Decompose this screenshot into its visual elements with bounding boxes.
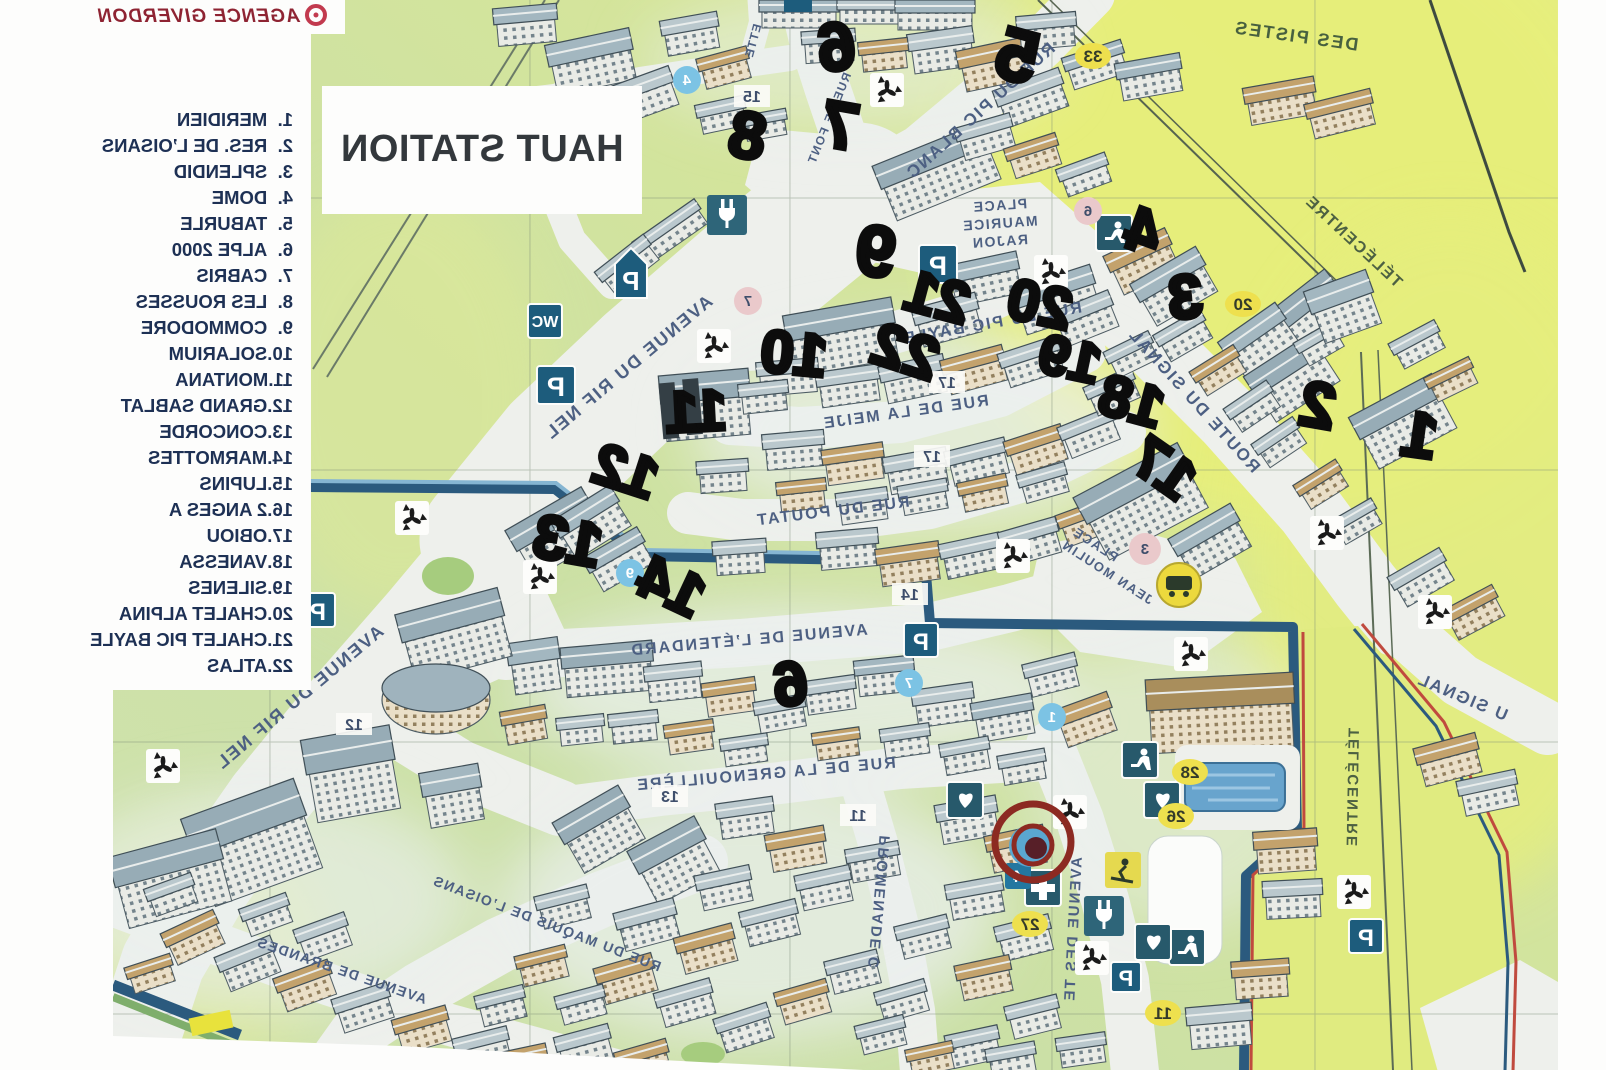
svg-text:27: 27 [1021,915,1040,934]
svg-text:17: 17 [938,375,956,392]
svg-text:2. RES. DE L’OISANS: 2. RES. DE L’OISANS [102,135,293,156]
svg-text:6: 6 [1084,203,1092,220]
svg-text:14.MARMOTTES: 14.MARMOTTES [148,447,293,468]
svg-text:11: 11 [849,808,866,825]
svg-text:9: 9 [852,210,899,293]
svg-text:11: 11 [664,377,729,445]
svg-text:8. LES ROUSSES: 8. LES ROUSSES [136,291,293,312]
svg-text:P: P [547,372,565,402]
svg-text:7: 7 [744,293,752,310]
svg-text:3: 3 [1141,541,1149,558]
svg-text:21.CHALET PIC BAYLE: 21.CHALET PIC BAYLE [90,629,293,650]
svg-text:20: 20 [1234,295,1253,314]
svg-text:P: P [913,629,929,656]
svg-text:1. MERIDIEN: 1. MERIDIEN [177,109,293,130]
svg-text:7. CABRIS: 7. CABRIS [196,265,293,286]
svg-text:19: 19 [1033,321,1107,396]
svg-text:WC: WC [531,314,558,331]
svg-text:P: P [310,599,326,626]
svg-text:HAUT STATION: HAUT STATION [340,128,623,170]
svg-text:20.CHALET ALPINA: 20.CHALET ALPINA [119,603,293,624]
svg-text:12: 12 [345,717,363,734]
svg-text:10: 10 [758,317,830,390]
svg-text:3. SPLENDID: 3. SPLENDID [174,161,293,182]
svg-text:P: P [622,266,639,296]
svg-text:11: 11 [1154,1004,1172,1023]
svg-text:11.MONTANA: 11.MONTANA [175,369,293,390]
svg-text:4: 4 [682,72,691,89]
svg-text:17.OBIOU: 17.OBIOU [207,525,293,546]
svg-text:18.VANESSA: 18.VANESSA [179,551,293,572]
svg-text:AGENCE GIVERDON: AGENCE GIVERDON [97,6,301,27]
svg-text:7: 7 [905,675,913,692]
svg-text:1: 1 [1048,709,1056,726]
svg-text:26: 26 [1167,807,1186,826]
svg-text:13: 13 [661,789,679,806]
svg-text:14: 14 [901,587,919,604]
svg-text:TÉLÉCENTRE: TÉLÉCENTRE [1344,728,1363,848]
svg-text:5. TABURLE: 5. TABURLE [180,213,293,234]
svg-text:4. DOME: 4. DOME [212,187,293,208]
svg-text:12.GRAND SABLAT: 12.GRAND SABLAT [120,395,293,416]
svg-text:15.LUPINS: 15.LUPINS [199,473,293,494]
svg-text:3: 3 [1165,262,1205,334]
svg-text:17: 17 [923,449,941,466]
svg-text:33: 33 [1084,47,1103,66]
svg-text:19.SILENES: 19.SILENES [188,577,293,598]
svg-text:9: 9 [626,565,634,582]
svg-text:10.SOLARIUM: 10.SOLARIUM [169,343,293,364]
svg-text:9. COMMODORE: 9. COMMODORE [141,317,293,338]
svg-text:13.CONCORDE: 13.CONCORDE [159,421,293,442]
svg-text:P: P [1358,925,1374,952]
svg-text:22.ATLAS: 22.ATLAS [207,655,293,676]
svg-text:P: P [1119,966,1134,991]
svg-text:13: 13 [528,502,608,582]
svg-text:16.2 ANGES A: 16.2 ANGES A [169,499,293,520]
svg-text:28: 28 [1181,763,1200,782]
svg-text:6. ALPE 2000: 6. ALPE 2000 [172,239,293,260]
